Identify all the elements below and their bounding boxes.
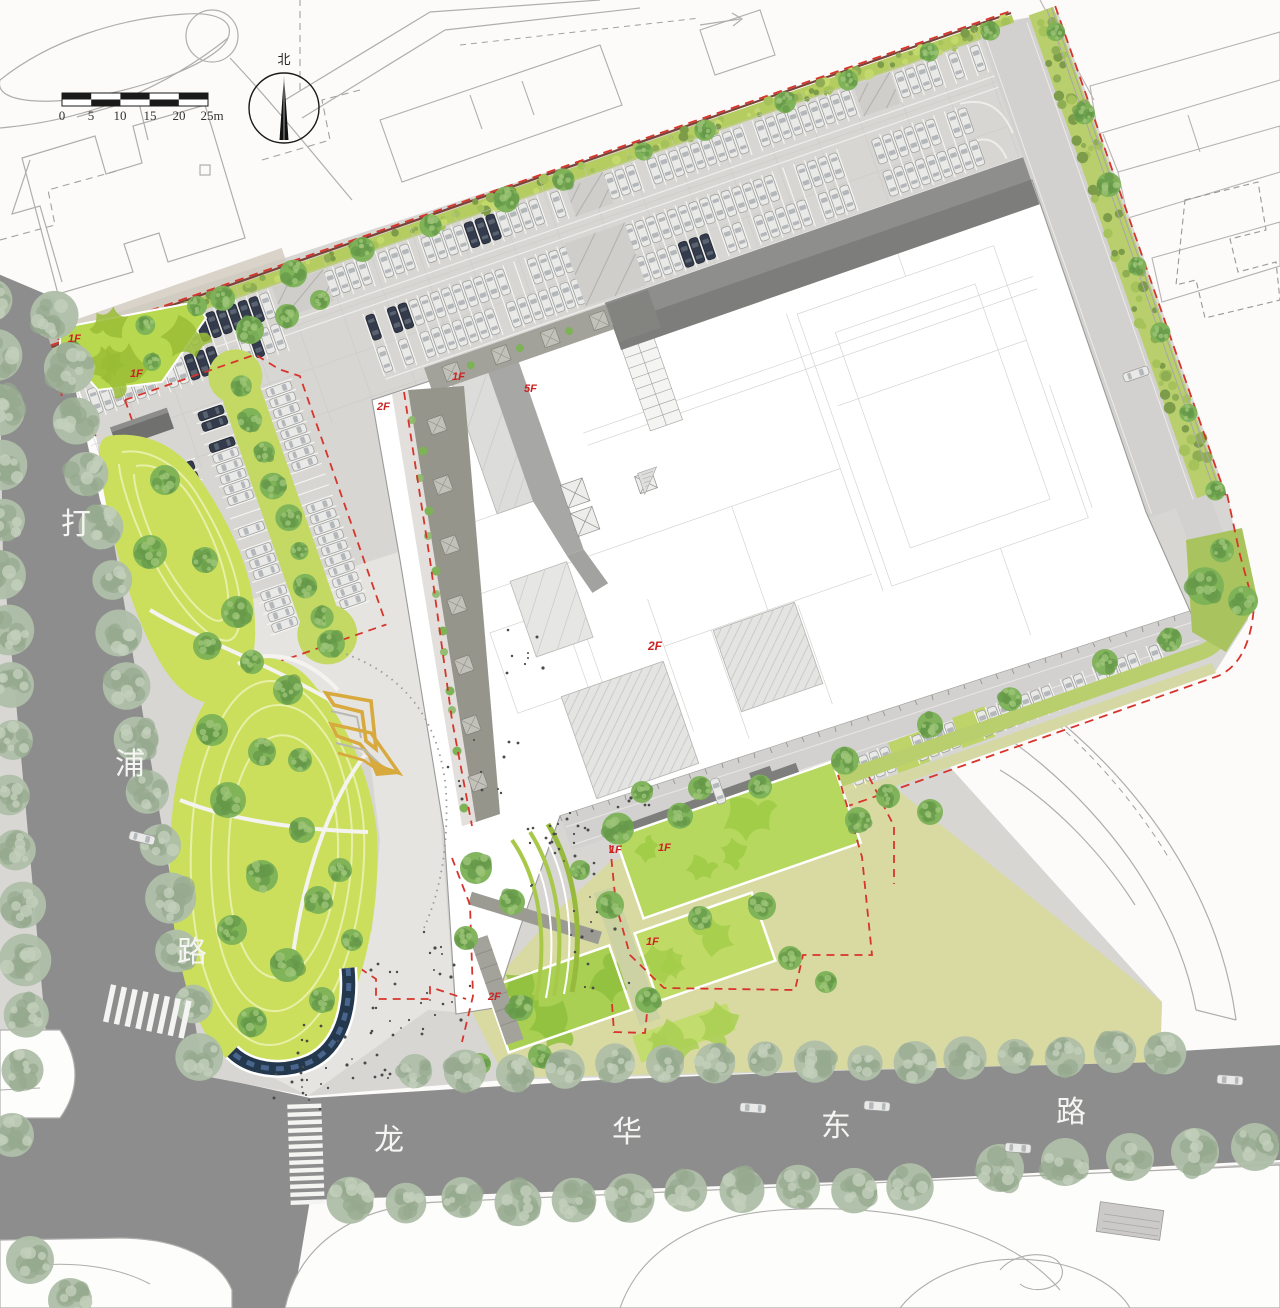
svg-text:1F: 1F — [658, 842, 671, 854]
svg-text:1F: 1F — [68, 333, 81, 345]
svg-text:东: 东 — [821, 1110, 851, 1143]
svg-text:1F: 1F — [130, 368, 143, 380]
svg-text:1F: 1F — [609, 844, 622, 856]
svg-text:华: 华 — [612, 1116, 642, 1149]
svg-text:打: 打 — [61, 508, 91, 541]
svg-text:5: 5 — [88, 108, 95, 123]
svg-text:龙: 龙 — [374, 1124, 404, 1157]
svg-text:10: 10 — [114, 108, 127, 123]
svg-text:15: 15 — [144, 108, 157, 123]
svg-text:2F: 2F — [376, 401, 390, 413]
svg-text:20: 20 — [173, 108, 186, 123]
svg-text:5F: 5F — [524, 383, 537, 395]
svg-text:路: 路 — [177, 936, 207, 969]
svg-text:2F: 2F — [487, 991, 501, 1003]
svg-text:路: 路 — [1056, 1096, 1086, 1129]
svg-text:北: 北 — [277, 52, 290, 67]
svg-text:1F: 1F — [452, 371, 465, 383]
svg-text:浦: 浦 — [115, 748, 145, 781]
svg-text:1F: 1F — [646, 936, 659, 948]
svg-text:2F: 2F — [647, 639, 663, 653]
svg-text:25m: 25m — [200, 108, 223, 123]
svg-text:0: 0 — [59, 108, 66, 123]
